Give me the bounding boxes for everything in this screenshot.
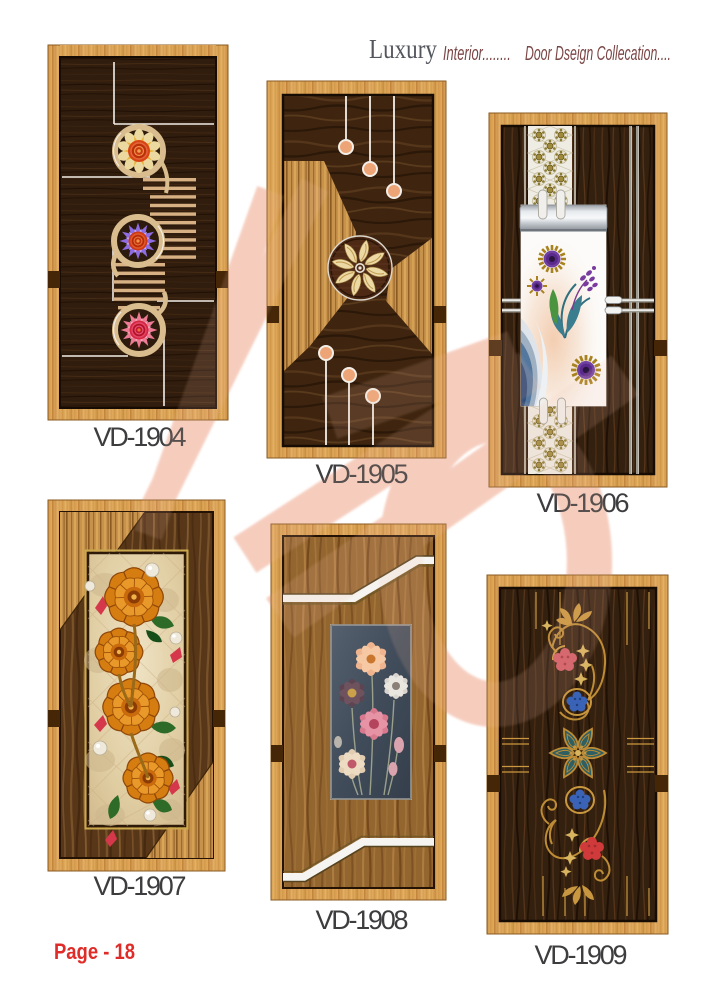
svg-text:Interior........: Interior........ — [443, 42, 511, 65]
svg-text:VD-1909: VD-1909 — [535, 940, 628, 970]
svg-text:VD-1908: VD-1908 — [316, 905, 409, 935]
svg-text:Luxury: Luxury — [369, 35, 437, 64]
svg-text:Door Dseign Collecation....: Door Dseign Collecation.... — [525, 42, 671, 65]
svg-text:VD-1907: VD-1907 — [94, 871, 187, 901]
svg-text:Page - 18: Page - 18 — [54, 939, 135, 964]
